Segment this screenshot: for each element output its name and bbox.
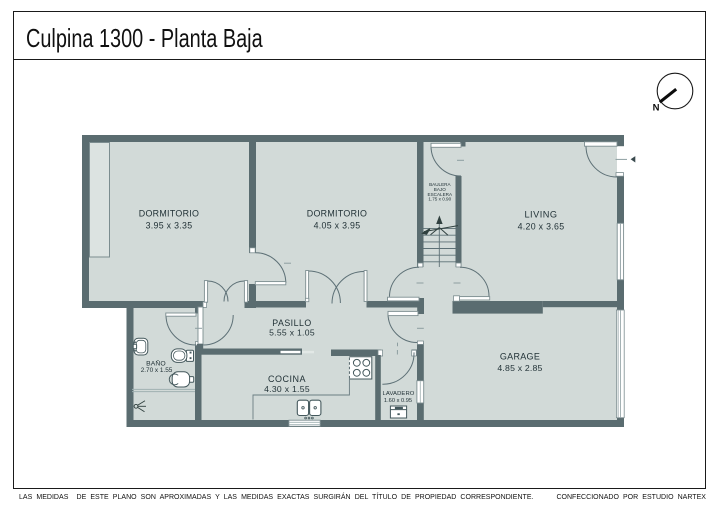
svg-text:GARAGE: GARAGE [500, 352, 540, 362]
svg-text:3.95 x 3.35: 3.95 x 3.35 [146, 221, 193, 231]
svg-text:LIVING: LIVING [524, 210, 557, 220]
svg-text:5.55 x 1.05: 5.55 x 1.05 [269, 328, 315, 338]
svg-text:COCINA: COCINA [268, 374, 306, 384]
svg-text:1.60 x 0.95: 1.60 x 0.95 [384, 398, 412, 404]
svg-text:DORMITORIO: DORMITORIO [139, 209, 200, 219]
svg-text:4.30 x 1.55: 4.30 x 1.55 [264, 384, 310, 394]
svg-text:4.85 x 2.85: 4.85 x 2.85 [497, 363, 542, 373]
svg-text:2.70 x 1.55: 2.70 x 1.55 [141, 367, 173, 374]
svg-text:1.75 x 0.90: 1.75 x 0.90 [428, 197, 451, 202]
svg-text:PASILLO: PASILLO [272, 318, 312, 328]
svg-text:N: N [653, 103, 660, 114]
svg-text:4.20 x 3.65: 4.20 x 3.65 [518, 222, 565, 232]
svg-text:LAVADERO: LAVADERO [382, 391, 414, 397]
svg-text:DORMITORIO: DORMITORIO [307, 209, 368, 219]
svg-text:4.05 x 3.95: 4.05 x 3.95 [314, 221, 361, 231]
